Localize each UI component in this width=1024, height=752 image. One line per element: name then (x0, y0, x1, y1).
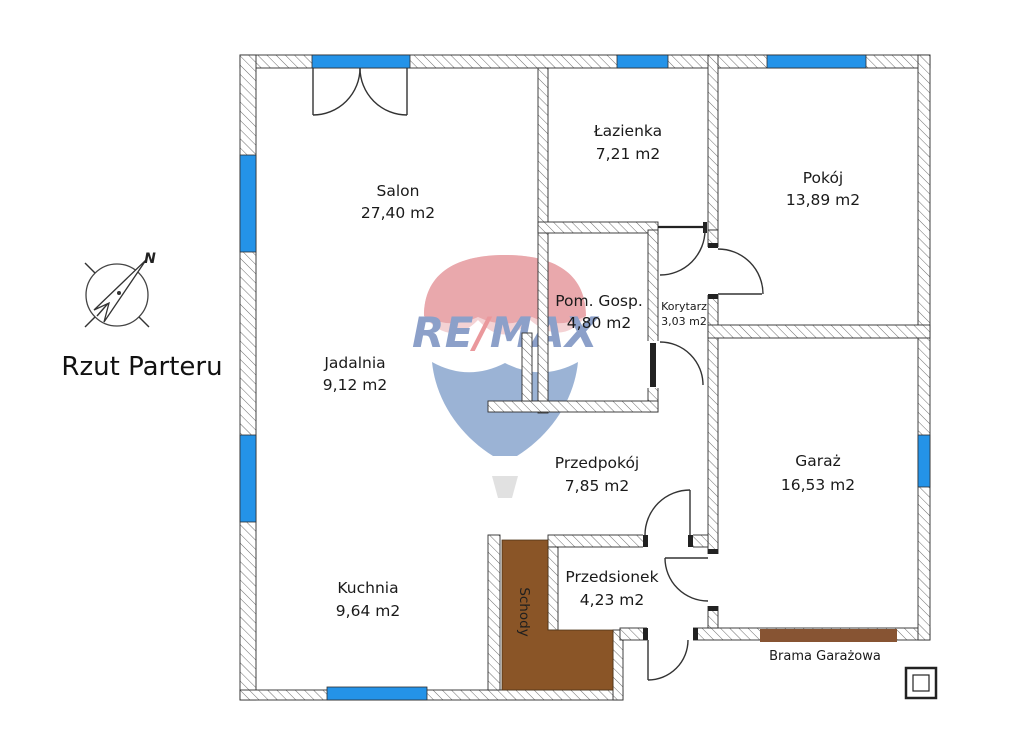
pokoj-door-jamb-top (708, 243, 718, 248)
wall-step-vertical (613, 630, 623, 700)
entrance-door-jamb-right (693, 628, 698, 640)
window-lazienka (617, 55, 668, 68)
przedpokoj-door-jamb-right (688, 535, 693, 547)
label-brama-garazowa: Brama Garażowa (769, 649, 881, 664)
opening-pokoj-door (707, 247, 719, 295)
opening-przedpokoj-door (643, 534, 693, 548)
compass-rose: N (85, 251, 156, 327)
label-jadalnia-name: Jadalnia (323, 354, 385, 372)
floor-plan-page: RE/MAX (0, 0, 1024, 752)
shaft-symbol-outer (906, 668, 936, 698)
opening-garaz-door (707, 554, 719, 606)
wall-schody-przedsionek (548, 547, 558, 630)
pomgosp-door-arc (660, 342, 703, 385)
compass-tick-se (139, 317, 149, 327)
window-left-lower (240, 435, 256, 522)
label-pokoj-area: 13,89 m2 (786, 191, 860, 209)
wall-kuchnia-schody (488, 535, 500, 690)
label-lazienka-area: 7,21 m2 (596, 145, 660, 163)
shaft-symbol (906, 668, 936, 698)
wall-lazienka-bottom (538, 222, 658, 233)
window-salon-balcony-door (312, 55, 410, 68)
label-salon-name: Salon (377, 182, 420, 200)
opening-entrance-door (647, 627, 693, 641)
wall-left (240, 55, 256, 700)
compass-needle (94, 260, 146, 322)
label-przedpokoj-name: Przedpokój (555, 454, 640, 472)
lazienka-door-arc (660, 230, 705, 275)
label-jadalnia-area: 9,12 m2 (323, 376, 387, 394)
compass-tick-sw (85, 317, 95, 327)
remax-text-re: RE (412, 308, 474, 357)
label-garaz-area: 16,53 m2 (781, 476, 855, 494)
window-left-upper (240, 155, 256, 252)
label-salon-area: 27,40 m2 (361, 204, 435, 222)
label-kuchnia-name: Kuchnia (337, 579, 398, 597)
window-garaz (918, 435, 930, 487)
entrance-door-jamb-left (643, 628, 648, 640)
wall-chimney (522, 333, 532, 401)
pokoj-door-jamb-bottom (708, 294, 718, 299)
compass-north-label: N (144, 251, 156, 267)
garaz-door-jamb-top (708, 549, 718, 554)
przedpokoj-door-jamb-left (643, 535, 648, 547)
room-labels: Salon 27,40 m2 Jadalnia 9,12 m2 Kuchnia … (323, 122, 881, 664)
pomgosp-door-leaf (650, 343, 656, 387)
label-przedsionek-name: Przedsionek (565, 568, 658, 586)
garaz-door-jamb-bottom (708, 606, 718, 611)
label-pomgosp-area: 4,80 m2 (567, 314, 631, 332)
label-pokoj-name: Pokój (803, 169, 844, 187)
window-pokoj (767, 55, 866, 68)
salon-door-left-arc (313, 68, 360, 115)
label-schody: Schody (516, 587, 532, 636)
salon-door-right-arc (360, 68, 407, 115)
wall-salon-lazienka (538, 68, 548, 413)
label-lazienka-name: Łazienka (593, 122, 662, 140)
wall-pokoj-garaz (708, 325, 930, 338)
compass-center-dot (117, 291, 121, 295)
label-garaz-name: Garaż (795, 452, 841, 470)
floor-plan-svg: RE/MAX (0, 0, 1024, 752)
wall-bottom-left (240, 690, 623, 700)
label-kuchnia-area: 9,64 m2 (336, 602, 400, 620)
compass-tick-nw (85, 263, 95, 273)
label-przedsionek-area: 4,23 m2 (580, 591, 644, 609)
pokoj-door-arc (718, 249, 763, 294)
przedpokoj-door-arc (645, 490, 690, 535)
window-kuchnia (327, 687, 427, 700)
label-korytarz-name: Korytarz (661, 300, 707, 313)
wall-pomgosp-bottom (488, 401, 658, 412)
page-title: Rzut Parteru (61, 352, 222, 382)
label-przedpokoj-area: 7,85 m2 (565, 477, 629, 495)
entrance-door-arc (648, 640, 688, 680)
label-pomgosp-name: Pom. Gosp. (555, 292, 643, 310)
label-korytarz-area: 3,03 m2 (661, 315, 707, 328)
wall-lazienka-pokoj (708, 55, 718, 230)
wall-right (918, 55, 930, 640)
garage-door-strip (760, 629, 897, 642)
garaz-door-arc (665, 558, 708, 601)
balloon-basket (492, 476, 518, 498)
